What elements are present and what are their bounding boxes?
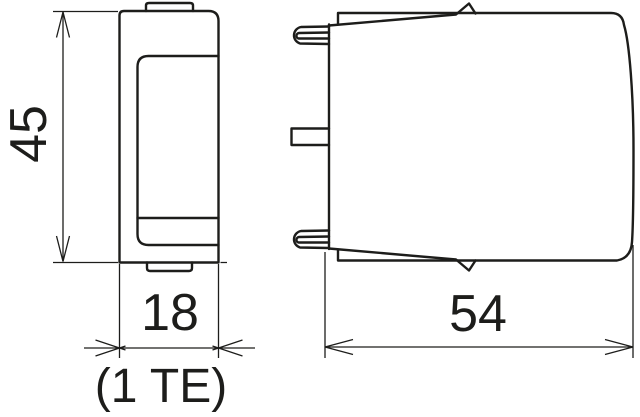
side-top-clip [294,27,329,45]
side-middle-tab [292,129,330,146]
front-bottom-tab [147,263,192,272]
drawing-canvas: 45 18 (1 TE) 54 [0,0,640,417]
height-dimension-label: 45 [0,105,58,163]
side-top-clip-spring [296,33,329,39]
width-unit-label: (1 TE) [95,360,227,413]
height-dimension: 45 [0,12,227,263]
technical-drawing: 45 18 (1 TE) 54 [0,0,640,417]
side-body-outline [338,13,634,261]
side-bottom-clip [294,231,329,249]
front-inner-panel [138,56,219,245]
width-dimension-label: 18 [141,284,199,342]
side-bottom-clip-spring [296,237,329,243]
front-view-drawing [120,3,219,271]
side-view-drawing [292,4,634,271]
depth-dimension: 54 [325,245,633,358]
front-body-outline [120,11,219,263]
width-dimension: 18 (1 TE) [84,264,255,413]
side-top-edge-slant [329,4,476,26]
depth-dimension-label: 54 [449,285,507,343]
